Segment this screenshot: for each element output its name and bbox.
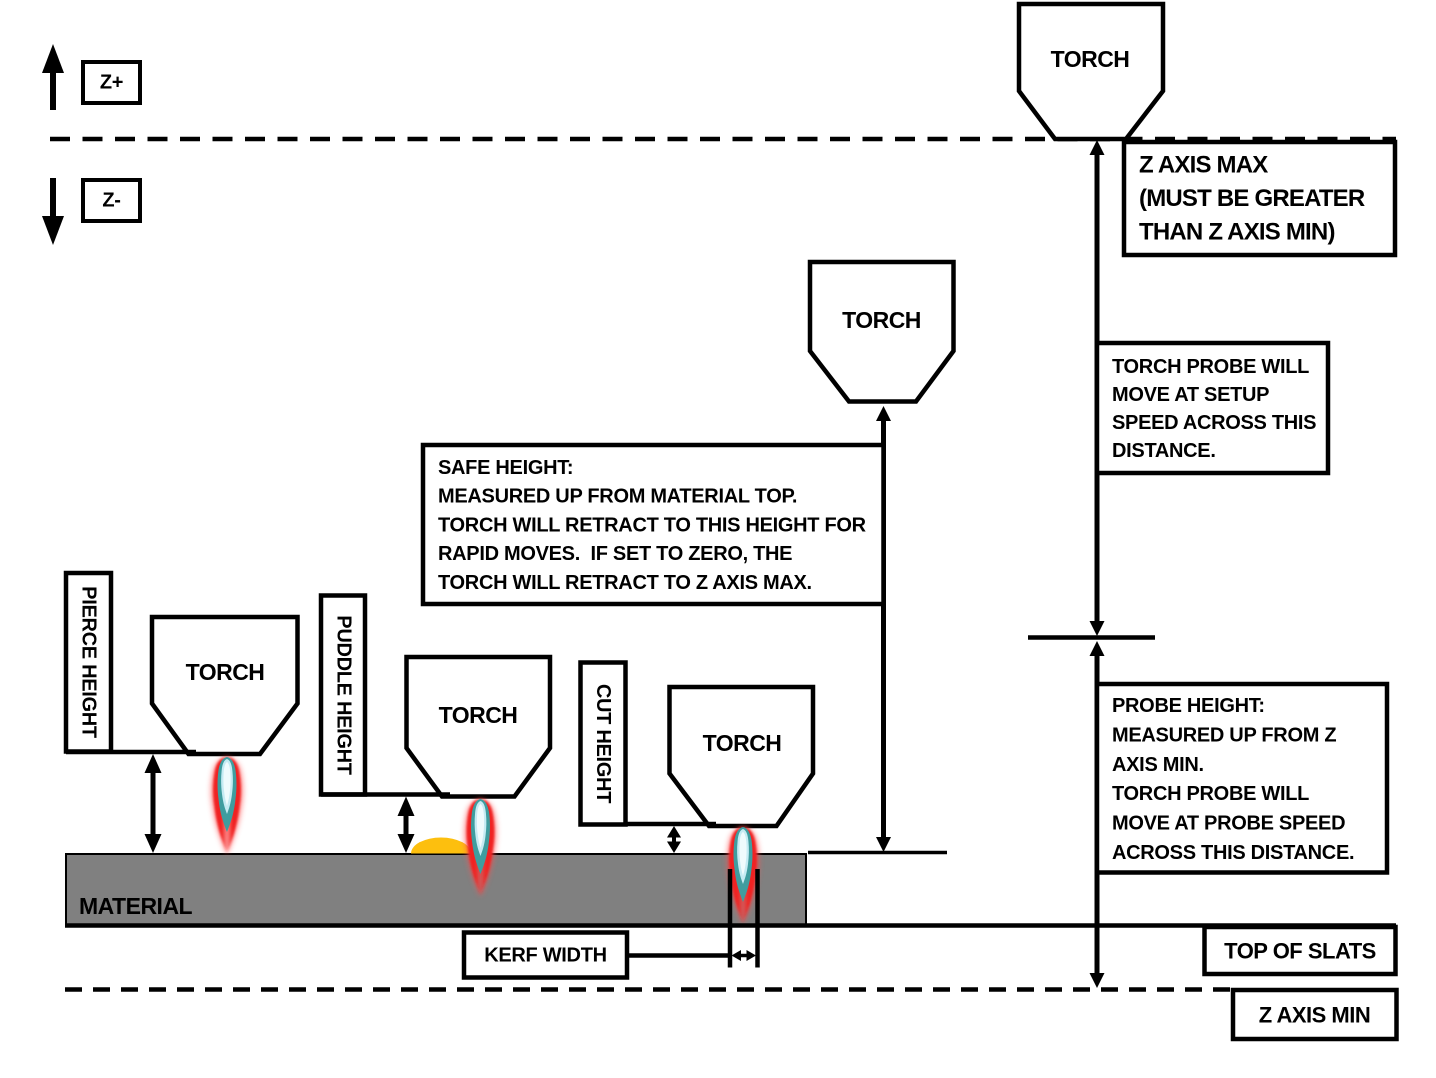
svg-text:TORCH PROBE WILL: TORCH PROBE WILL (1112, 356, 1309, 378)
svg-text:TORCH PROBE WILL: TORCH PROBE WILL (1112, 783, 1309, 805)
svg-text:TORCH: TORCH (842, 307, 921, 333)
svg-text:KERF WIDTH: KERF WIDTH (484, 945, 607, 967)
svg-text:PUDDLE HEIGHT: PUDDLE HEIGHT (333, 615, 355, 775)
svg-text:MOVE AT PROBE SPEED: MOVE AT PROBE SPEED (1112, 813, 1345, 835)
svg-text:TORCH: TORCH (186, 659, 265, 685)
svg-text:MEASURED UP FROM Z: MEASURED UP FROM Z (1112, 724, 1336, 746)
svg-text:TOP OF SLATS: TOP OF SLATS (1224, 939, 1376, 964)
svg-text:MOVE AT SETUP: MOVE AT SETUP (1112, 384, 1269, 406)
svg-text:Z AXIS MIN: Z AXIS MIN (1259, 1003, 1371, 1028)
svg-text:SAFE HEIGHT:: SAFE HEIGHT: (438, 457, 573, 479)
svg-text:TORCH: TORCH (1051, 46, 1130, 72)
svg-text:TORCH WILL RETRACT TO THIS HEI: TORCH WILL RETRACT TO THIS HEIGHT FOR (438, 514, 867, 536)
svg-text:AXIS MIN.: AXIS MIN. (1112, 754, 1204, 776)
svg-text:TORCH: TORCH (439, 702, 518, 728)
svg-text:(MUST BE GREATER: (MUST BE GREATER (1139, 185, 1365, 212)
svg-text:DISTANCE.: DISTANCE. (1112, 440, 1216, 462)
svg-text:MEASURED UP FROM MATERIAL TOP.: MEASURED UP FROM MATERIAL TOP. (438, 486, 797, 508)
svg-text:MATERIAL: MATERIAL (79, 893, 193, 919)
svg-text:Z AXIS MAX: Z AXIS MAX (1139, 152, 1268, 179)
svg-text:Z+: Z+ (100, 72, 123, 94)
svg-text:CUT HEIGHT: CUT HEIGHT (592, 684, 614, 803)
svg-text:TORCH: TORCH (703, 730, 782, 756)
svg-text:PROBE HEIGHT:: PROBE HEIGHT: (1112, 695, 1265, 717)
svg-text:PIERCE HEIGHT: PIERCE HEIGHT (78, 586, 100, 738)
svg-text:RAPID MOVES. IF SET TO ZERO,: RAPID MOVES. IF SET TO ZERO, THE (438, 543, 792, 565)
svg-text:Z-: Z- (102, 190, 120, 212)
svg-text:ACROSS THIS DISTANCE.: ACROSS THIS DISTANCE. (1112, 842, 1354, 864)
svg-text:TORCH WILL RETRACT TO Z AXIS M: TORCH WILL RETRACT TO Z AXIS MAX. (438, 572, 812, 594)
svg-text:THAN Z AXIS MIN): THAN Z AXIS MIN) (1139, 219, 1335, 246)
svg-text:SPEED ACROSS THIS: SPEED ACROSS THIS (1112, 412, 1316, 434)
